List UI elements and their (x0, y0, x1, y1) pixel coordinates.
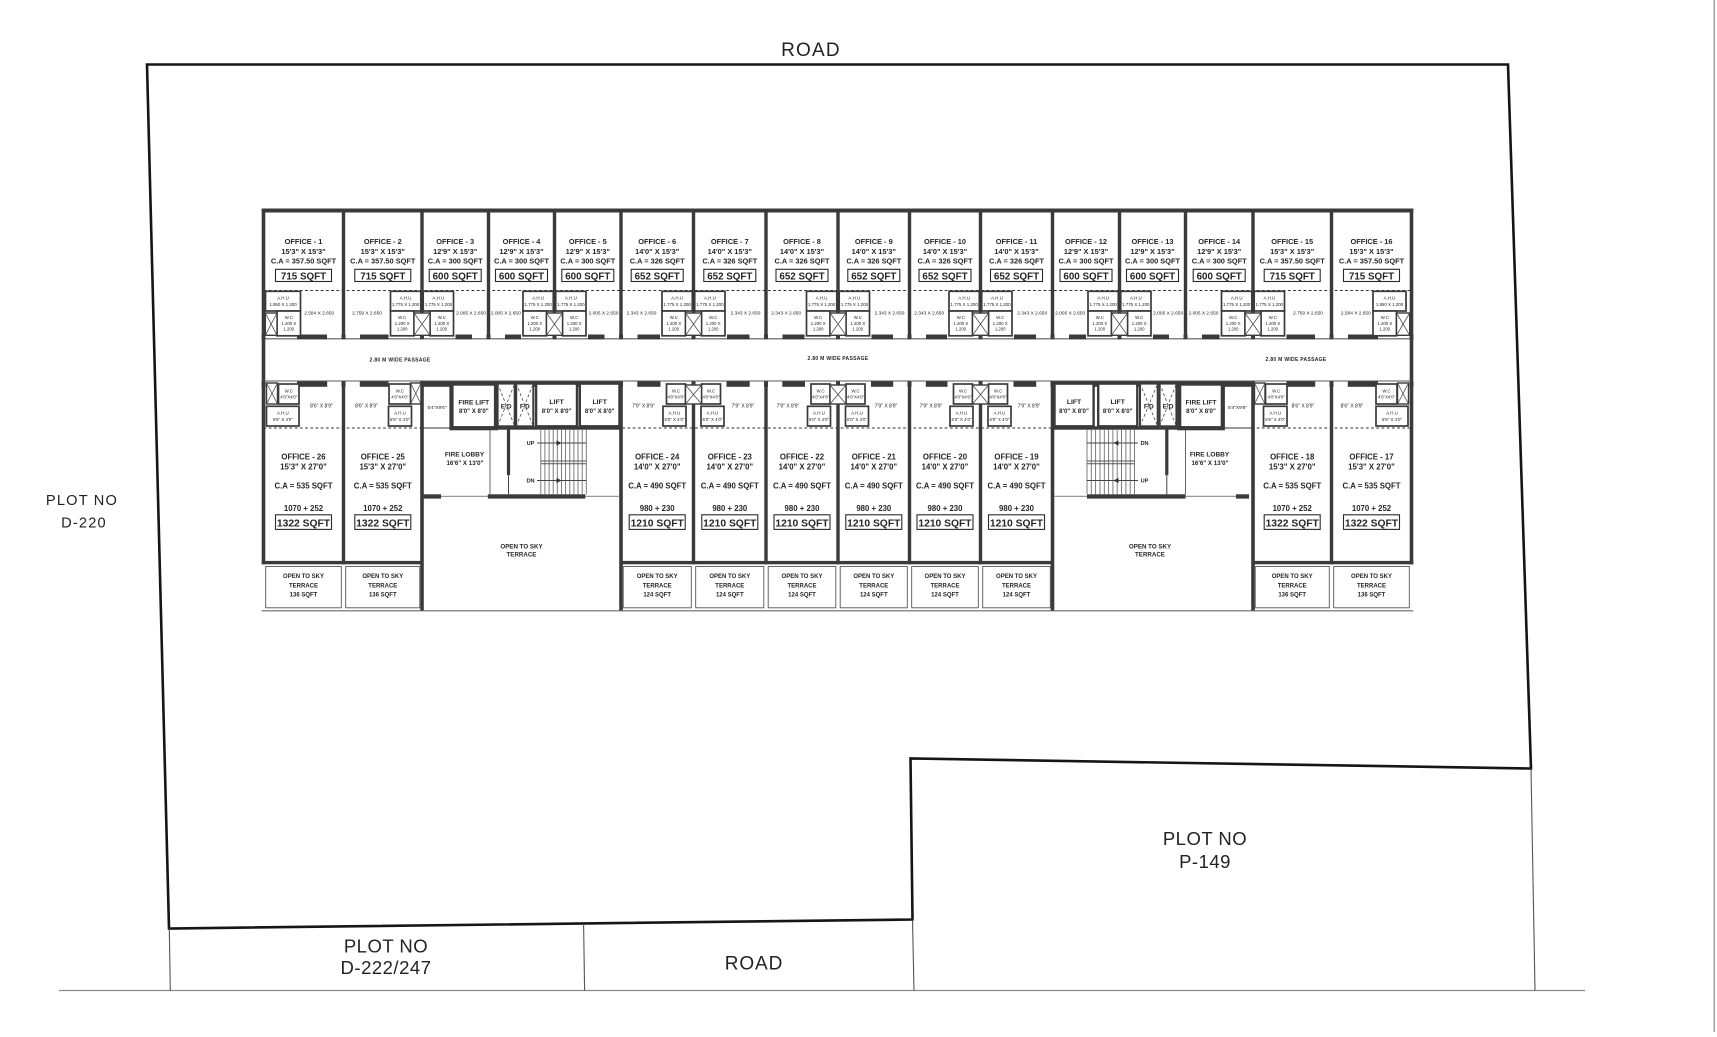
svg-text:1.200: 1.200 (955, 327, 966, 332)
svg-text:15'3" X 27'0": 15'3" X 27'0" (1348, 463, 1395, 472)
svg-text:OPEN TO SKY: OPEN TO SKY (853, 574, 894, 580)
svg-text:A.H.U: A.H.U (816, 296, 828, 301)
svg-text:OPEN TO SKY: OPEN TO SKY (782, 574, 823, 580)
svg-text:4'0"X4'0": 4'0"X4'0" (812, 394, 830, 399)
svg-text:OFFICE - 8: OFFICE - 8 (783, 237, 821, 246)
svg-text:715 SQFT: 715 SQFT (1270, 271, 1315, 282)
svg-text:6'6" X 4'0": 6'6" X 4'0" (1265, 417, 1285, 422)
svg-text:C.A = 535 SQFT: C.A = 535 SQFT (1263, 481, 1321, 490)
svg-text:C.A = 357.50 SQFT: C.A = 357.50 SQFT (350, 257, 416, 266)
svg-text:715 SQFT: 715 SQFT (1349, 271, 1394, 282)
svg-text:12'9" X 15'3": 12'9" X 15'3" (566, 247, 611, 256)
svg-text:W.C: W.C (1381, 315, 1389, 320)
svg-text:1.775 X 1.200: 1.775 X 1.200 (696, 302, 724, 307)
svg-text:W.C: W.C (707, 389, 715, 394)
svg-text:1.775 X 1.200: 1.775 X 1.200 (983, 302, 1011, 307)
svg-text:1.200 X: 1.200 X (567, 321, 582, 326)
svg-text:14'0" X 27'0": 14'0" X 27'0" (993, 463, 1040, 472)
svg-text:C.A = 535 SQFT: C.A = 535 SQFT (1343, 481, 1401, 490)
svg-text:8'6" X 8'9": 8'6" X 8'9" (1341, 404, 1364, 410)
svg-text:124 SQFT: 124 SQFT (860, 593, 888, 599)
svg-text:A.H.U: A.H.U (277, 296, 289, 301)
svg-text:136 SQFT: 136 SQFT (1358, 593, 1386, 599)
svg-text:C.A = 326 SQFT: C.A = 326 SQFT (702, 257, 757, 266)
svg-text:OFFICE - 22: OFFICE - 22 (780, 452, 825, 461)
svg-text:6'6" X 4'0": 6'6" X 4'0" (1382, 417, 1402, 422)
svg-text:A.H.U: A.H.U (1231, 296, 1243, 301)
svg-text:A.H.U: A.H.U (669, 411, 681, 416)
svg-text:1210 SQFT: 1210 SQFT (990, 518, 1044, 529)
svg-text:PLOT NO: PLOT NO (46, 493, 118, 509)
svg-text:8'0" X 8'0": 8'0" X 8'0" (1186, 408, 1216, 415)
svg-text:A.H.U: A.H.U (433, 296, 445, 301)
svg-text:C.A = 326 SQFT: C.A = 326 SQFT (775, 257, 830, 266)
svg-text:OFFICE - 7: OFFICE - 7 (711, 237, 749, 246)
svg-text:TERRACE: TERRACE (930, 583, 959, 589)
svg-text:W.C: W.C (570, 315, 578, 320)
svg-text:652 SQFT: 652 SQFT (922, 271, 967, 282)
svg-text:A.H.U: A.H.U (994, 411, 1006, 416)
svg-text:W.C: W.C (285, 315, 293, 320)
svg-text:1.775 X 1.200: 1.775 X 1.200 (524, 302, 552, 307)
svg-text:1.200 X: 1.200 X (434, 321, 449, 326)
svg-text:652 SQFT: 652 SQFT (851, 271, 896, 282)
svg-text:6'0" X 4'0": 6'0" X 4'0" (665, 417, 685, 422)
svg-text:2.005 X 2.650: 2.005 X 2.650 (1189, 310, 1219, 316)
svg-text:W.C: W.C (816, 389, 824, 394)
svg-text:2.005 X 2.650: 2.005 X 2.650 (1153, 310, 1183, 316)
svg-text:W.C: W.C (1382, 389, 1390, 394)
svg-text:980 + 230: 980 + 230 (856, 504, 892, 513)
svg-text:C.A = 326 SQFT: C.A = 326 SQFT (989, 257, 1044, 266)
svg-text:W.C: W.C (672, 389, 680, 394)
svg-text:LIFT: LIFT (593, 399, 608, 406)
svg-text:OFFICE - 24: OFFICE - 24 (635, 452, 680, 461)
svg-text:1.200 X: 1.200 X (953, 321, 968, 326)
svg-text:1.200 X: 1.200 X (281, 321, 296, 326)
svg-text:A.H.U: A.H.U (1386, 411, 1398, 416)
svg-text:12'9" X 15'3": 12'9" X 15'3" (1064, 247, 1109, 256)
svg-text:A.H.U: A.H.U (1130, 296, 1142, 301)
svg-text:C.A = 300 SQFT: C.A = 300 SQFT (560, 257, 615, 266)
svg-text:8'0" X 8'0": 8'0" X 8'0" (585, 408, 615, 415)
svg-text:OPEN TO SKY: OPEN TO SKY (1129, 544, 1172, 551)
svg-text:600 SQFT: 600 SQFT (565, 271, 610, 282)
svg-text:DN: DN (1140, 441, 1148, 447)
svg-text:8'6" X 8'9": 8'6" X 8'9" (355, 404, 378, 410)
svg-text:D-222/247: D-222/247 (341, 957, 432, 978)
svg-text:F.D: F.D (1144, 404, 1154, 411)
svg-text:W.C: W.C (957, 315, 965, 320)
svg-text:1.200: 1.200 (1267, 327, 1278, 332)
svg-text:2.759 X 2.650: 2.759 X 2.650 (1293, 310, 1323, 316)
svg-text:1.200 X: 1.200 X (1265, 321, 1280, 326)
svg-text:16'6" X 13'0": 16'6" X 13'0" (1191, 460, 1228, 467)
svg-text:12'9" X 15'3": 12'9" X 15'3" (1197, 247, 1242, 256)
svg-text:C.A = 357.50 SQFT: C.A = 357.50 SQFT (1260, 257, 1326, 266)
svg-text:4'0"X4'0": 4'0"X4'0" (667, 394, 685, 399)
svg-text:C.A = 326 SQFT: C.A = 326 SQFT (918, 257, 973, 266)
svg-text:6'6" X 4'0": 6'6" X 4'0" (390, 417, 410, 422)
svg-text:16'6" X 13'0": 16'6" X 13'0" (446, 460, 483, 467)
svg-text:C.A = 300 SQFT: C.A = 300 SQFT (494, 257, 549, 266)
svg-text:UP: UP (1141, 479, 1149, 485)
svg-text:15'3" X 15'3": 15'3" X 15'3" (1349, 247, 1394, 256)
svg-text:OFFICE - 4: OFFICE - 4 (503, 237, 542, 246)
svg-text:1.200: 1.200 (1094, 327, 1105, 332)
svg-text:A.H.U: A.H.U (849, 296, 861, 301)
svg-text:6'0" X 4'0": 6'0" X 4'0" (703, 417, 723, 422)
svg-text:14'0" X 27'0": 14'0" X 27'0" (850, 463, 897, 472)
svg-text:4'0"X4'0": 4'0"X4'0" (1268, 394, 1286, 399)
svg-text:A.H.U: A.H.U (277, 411, 289, 416)
svg-text:OPEN TO SKY: OPEN TO SKY (996, 574, 1037, 580)
svg-text:OPEN TO SKY: OPEN TO SKY (925, 574, 966, 580)
svg-text:2.584 X 2.650: 2.584 X 2.650 (304, 310, 334, 316)
svg-text:W.C: W.C (996, 315, 1004, 320)
svg-text:14'0" X 27'0": 14'0" X 27'0" (922, 463, 969, 472)
svg-text:OFFICE - 25: OFFICE - 25 (361, 452, 406, 461)
svg-text:OFFICE - 5: OFFICE - 5 (569, 237, 607, 246)
svg-text:600 SQFT: 600 SQFT (433, 271, 478, 282)
svg-text:5'4"X9'6": 5'4"X9'6" (427, 405, 446, 411)
svg-text:OPEN TO SKY: OPEN TO SKY (500, 544, 543, 551)
svg-text:6'0" X 4'0": 6'0" X 4'0" (847, 417, 867, 422)
svg-text:8'0" X 8'0": 8'0" X 8'0" (1103, 408, 1133, 415)
svg-text:A.H.U: A.H.U (991, 296, 1003, 301)
svg-text:1.200: 1.200 (569, 327, 580, 332)
svg-text:8'0" X 8'0": 8'0" X 8'0" (1059, 408, 1089, 415)
svg-text:OFFICE - 21: OFFICE - 21 (852, 452, 897, 461)
svg-text:TERRACE: TERRACE (289, 583, 318, 589)
svg-text:A.H.U: A.H.U (707, 411, 719, 416)
svg-text:C.A = 535 SQFT: C.A = 535 SQFT (354, 481, 412, 490)
svg-text:C.A = 490 SQFT: C.A = 490 SQFT (916, 481, 974, 490)
svg-text:1.775 X 1.200: 1.775 X 1.200 (1090, 302, 1118, 307)
svg-text:LIFT: LIFT (549, 399, 564, 406)
svg-text:TERRACE: TERRACE (715, 583, 744, 589)
svg-text:C.A = 357.50 SQFT: C.A = 357.50 SQFT (271, 257, 337, 266)
svg-text:715 SQFT: 715 SQFT (360, 271, 405, 282)
svg-text:W.C: W.C (1135, 315, 1143, 320)
svg-text:A.H.U: A.H.U (956, 411, 968, 416)
svg-text:715 SQFT: 715 SQFT (281, 271, 326, 282)
svg-text:980 + 230: 980 + 230 (785, 504, 821, 513)
svg-text:14'0" X 27'0": 14'0" X 27'0" (706, 463, 753, 472)
svg-text:2.343 X 2.650: 2.343 X 2.650 (875, 310, 905, 316)
svg-text:1.200: 1.200 (813, 327, 824, 332)
svg-text:1.200: 1.200 (668, 327, 679, 332)
svg-text:A.H.U: A.H.U (958, 296, 970, 301)
svg-text:7'9" X 8'9": 7'9" X 8'9" (632, 404, 655, 410)
svg-text:A.H.U: A.H.U (851, 411, 863, 416)
svg-text:2.80 M WIDE PASSAGE: 2.80 M WIDE PASSAGE (370, 357, 431, 363)
svg-text:P-149: P-149 (1179, 851, 1231, 872)
svg-text:652 SQFT: 652 SQFT (707, 271, 752, 282)
svg-text:1070 + 252: 1070 + 252 (363, 504, 403, 513)
svg-text:2.584 X 2.650: 2.584 X 2.650 (1341, 310, 1371, 316)
svg-text:W.C: W.C (398, 315, 406, 320)
svg-text:2.005 X 2.650: 2.005 X 2.650 (589, 310, 619, 316)
svg-text:1.200 X: 1.200 X (1092, 321, 1107, 326)
svg-text:TERRACE: TERRACE (1135, 551, 1165, 558)
svg-text:1070 + 252: 1070 + 252 (284, 504, 324, 513)
svg-text:W.C: W.C (285, 389, 293, 394)
svg-text:1.200: 1.200 (436, 327, 447, 332)
svg-text:1.200 X: 1.200 X (527, 321, 542, 326)
svg-text:TERRACE: TERRACE (1278, 583, 1307, 589)
svg-text:7'9" X 8'9": 7'9" X 8'9" (875, 404, 898, 410)
svg-text:1.775 X 1.200: 1.775 X 1.200 (1122, 302, 1150, 307)
svg-text:C.A = 490 SQFT: C.A = 490 SQFT (701, 481, 759, 490)
svg-text:1.775 X 1.200: 1.775 X 1.200 (663, 302, 691, 307)
svg-text:7'9" X 8'9": 7'9" X 8'9" (777, 404, 800, 410)
svg-text:OFFICE - 6: OFFICE - 6 (638, 237, 676, 246)
svg-text:C.A = 300 SQFT: C.A = 300 SQFT (1059, 257, 1114, 266)
svg-text:W.C: W.C (854, 315, 862, 320)
svg-text:1.200 X: 1.200 X (666, 321, 681, 326)
svg-text:1.775 X 1.200: 1.775 X 1.200 (808, 302, 836, 307)
svg-text:TERRACE: TERRACE (859, 583, 888, 589)
svg-text:2.343 X 2.650: 2.343 X 2.650 (627, 310, 657, 316)
svg-text:1.775 X 1.200: 1.775 X 1.200 (1256, 302, 1284, 307)
svg-text:4'0"X4'0": 4'0"X4'0" (1378, 394, 1396, 399)
svg-text:1.200: 1.200 (1379, 327, 1390, 332)
svg-text:600 SQFT: 600 SQFT (1130, 271, 1175, 282)
svg-text:DN: DN (526, 479, 534, 485)
svg-text:1210 SQFT: 1210 SQFT (703, 518, 757, 529)
svg-text:1.775 X 1.200: 1.775 X 1.200 (557, 302, 585, 307)
svg-text:LIFT: LIFT (1111, 399, 1126, 406)
svg-text:OFFICE - 16: OFFICE - 16 (1351, 237, 1393, 246)
svg-text:4'0"X4'0": 4'0"X4'0" (280, 394, 298, 399)
svg-text:1.200: 1.200 (852, 327, 863, 332)
svg-text:W.C: W.C (531, 315, 539, 320)
svg-text:OFFICE - 12: OFFICE - 12 (1065, 237, 1107, 246)
svg-text:OPEN TO SKY: OPEN TO SKY (362, 574, 403, 580)
svg-text:136 SQFT: 136 SQFT (369, 593, 397, 599)
svg-text:1210 SQFT: 1210 SQFT (918, 518, 972, 529)
svg-text:4'0"X4'0": 4'0"X4'0" (954, 394, 972, 399)
svg-text:1.950 X 1.200: 1.950 X 1.200 (1376, 302, 1404, 307)
svg-text:15'3" X 15'3": 15'3" X 15'3" (1270, 247, 1315, 256)
svg-text:E.D: E.D (1163, 404, 1174, 411)
svg-text:OFFICE - 19: OFFICE - 19 (994, 452, 1039, 461)
svg-text:7'9" X 8'9": 7'9" X 8'9" (732, 404, 755, 410)
svg-text:OFFICE - 1: OFFICE - 1 (285, 237, 323, 246)
svg-text:124 SQFT: 124 SQFT (716, 593, 744, 599)
svg-text:8'0" X 8'0": 8'0" X 8'0" (459, 408, 489, 415)
svg-text:2.759 X 2.650: 2.759 X 2.650 (352, 310, 382, 316)
svg-text:652 SQFT: 652 SQFT (994, 271, 1039, 282)
svg-text:1210 SQFT: 1210 SQFT (631, 518, 685, 529)
svg-text:A.H.U: A.H.U (1263, 296, 1275, 301)
svg-text:A.H.U: A.H.U (1384, 296, 1396, 301)
svg-text:124 SQFT: 124 SQFT (788, 593, 816, 599)
svg-text:1210 SQFT: 1210 SQFT (775, 518, 829, 529)
svg-text:124 SQFT: 124 SQFT (1003, 593, 1031, 599)
svg-text:6'0" X 4'0": 6'0" X 4'0" (952, 417, 972, 422)
svg-text:1.200 X: 1.200 X (811, 321, 826, 326)
svg-text:652 SQFT: 652 SQFT (635, 271, 680, 282)
svg-text:14'0" X 15'3": 14'0" X 15'3" (994, 247, 1039, 256)
svg-text:980 + 230: 980 + 230 (712, 504, 748, 513)
svg-text:C.A = 490 SQFT: C.A = 490 SQFT (845, 481, 903, 490)
svg-text:TERRACE: TERRACE (1357, 583, 1386, 589)
svg-text:15'3" X 27'0": 15'3" X 27'0" (280, 463, 327, 472)
svg-text:5'4"X9'6": 5'4"X9'6" (1228, 405, 1247, 411)
svg-text:2.343 X 2.650: 2.343 X 2.650 (914, 310, 944, 316)
svg-text:1.200 X: 1.200 X (850, 321, 865, 326)
svg-text:W.C: W.C (851, 389, 859, 394)
svg-text:14'0" X 15'3": 14'0" X 15'3" (635, 247, 680, 256)
svg-text:OFFICE - 2: OFFICE - 2 (364, 237, 402, 246)
svg-text:C.A = 490 SQFT: C.A = 490 SQFT (988, 481, 1046, 490)
svg-text:1.200 X: 1.200 X (1226, 321, 1241, 326)
svg-text:1.200: 1.200 (1228, 327, 1239, 332)
svg-text:12'9" X 15'3": 12'9" X 15'3" (433, 247, 478, 256)
svg-text:600 SQFT: 600 SQFT (1197, 271, 1242, 282)
svg-text:OPEN TO SKY: OPEN TO SKY (637, 574, 678, 580)
svg-text:6'0" X 4'0": 6'0" X 4'0" (990, 417, 1010, 422)
svg-text:D-220: D-220 (61, 516, 107, 532)
svg-text:W.C: W.C (670, 315, 678, 320)
svg-text:ROAD: ROAD (725, 954, 784, 975)
svg-text:A.H.U: A.H.U (704, 296, 716, 301)
svg-text:C.A = 535 SQFT: C.A = 535 SQFT (275, 481, 333, 490)
svg-text:W.C: W.C (959, 389, 967, 394)
svg-text:OFFICE - 15: OFFICE - 15 (1271, 237, 1313, 246)
svg-text:1.775 X 1.200: 1.775 X 1.200 (392, 302, 420, 307)
svg-text:C.A = 300 SQFT: C.A = 300 SQFT (1125, 257, 1180, 266)
svg-text:OFFICE - 20: OFFICE - 20 (923, 452, 968, 461)
svg-text:1322 SQFT: 1322 SQFT (356, 518, 410, 529)
svg-text:1322 SQFT: 1322 SQFT (1266, 518, 1320, 529)
svg-text:1.775 X 1.200: 1.775 X 1.200 (950, 302, 978, 307)
svg-text:1.200: 1.200 (529, 327, 540, 332)
svg-text:4'0"X4'0": 4'0"X4'0" (702, 394, 720, 399)
svg-text:4'0"X4'0": 4'0"X4'0" (847, 394, 865, 399)
svg-text:C.A = 490 SQFT: C.A = 490 SQFT (628, 481, 686, 490)
svg-text:PLOT NO: PLOT NO (344, 936, 428, 957)
svg-text:1.200: 1.200 (397, 327, 408, 332)
svg-text:1.200: 1.200 (1134, 327, 1145, 332)
svg-text:1210 SQFT: 1210 SQFT (847, 518, 901, 529)
svg-text:OFFICE - 9: OFFICE - 9 (855, 237, 893, 246)
svg-text:ROAD: ROAD (781, 40, 841, 61)
svg-text:OPEN TO SKY: OPEN TO SKY (1351, 574, 1392, 580)
svg-text:C.A = 326 SQFT: C.A = 326 SQFT (630, 257, 685, 266)
svg-text:OFFICE - 18: OFFICE - 18 (1270, 452, 1315, 461)
svg-text:652 SQFT: 652 SQFT (779, 271, 824, 282)
svg-text:12'9" X 15'3": 12'9" X 15'3" (1130, 247, 1175, 256)
svg-text:4'0"X4'0": 4'0"X4'0" (989, 394, 1007, 399)
svg-text:6'0" X 4'0": 6'0" X 4'0" (809, 417, 829, 422)
svg-text:TERRACE: TERRACE (1002, 583, 1031, 589)
svg-text:A.H.U: A.H.U (813, 411, 825, 416)
svg-text:4'0"X4'0": 4'0"X4'0" (391, 394, 409, 399)
svg-text:124 SQFT: 124 SQFT (643, 593, 671, 599)
svg-text:1070 + 252: 1070 + 252 (1352, 504, 1392, 513)
svg-text:C.A = 326 SQFT: C.A = 326 SQFT (846, 257, 901, 266)
svg-text:15'3" X 15'3": 15'3" X 15'3" (281, 247, 326, 256)
svg-text:W.C: W.C (1229, 315, 1237, 320)
svg-text:LIFT: LIFT (1067, 399, 1082, 406)
svg-text:A.H.U: A.H.U (565, 296, 577, 301)
svg-text:W.C: W.C (994, 389, 1002, 394)
svg-text:6'6" X 4'0": 6'6" X 4'0" (273, 417, 293, 422)
svg-text:OFFICE - 13: OFFICE - 13 (1132, 237, 1174, 246)
svg-text:OPEN TO SKY: OPEN TO SKY (1272, 574, 1313, 580)
svg-text:1.200 X: 1.200 X (1377, 321, 1392, 326)
svg-text:1.200: 1.200 (995, 327, 1006, 332)
svg-text:1.200 X: 1.200 X (706, 321, 721, 326)
svg-text:124 SQFT: 124 SQFT (931, 593, 959, 599)
svg-text:W.C: W.C (814, 315, 822, 320)
svg-text:TERRACE: TERRACE (368, 583, 397, 589)
svg-text:2.005 X 2.650: 2.005 X 2.650 (1055, 310, 1085, 316)
svg-text:1.200: 1.200 (283, 327, 294, 332)
svg-text:600 SQFT: 600 SQFT (499, 271, 544, 282)
svg-text:14'0" X 15'3": 14'0" X 15'3" (923, 247, 968, 256)
svg-text:15'3" X 27'0": 15'3" X 27'0" (359, 463, 406, 472)
svg-text:2.343 X 2.650: 2.343 X 2.650 (731, 310, 761, 316)
svg-text:FIRE LIFT: FIRE LIFT (1186, 400, 1217, 407)
svg-text:12'9" X 15'3": 12'9" X 15'3" (499, 247, 544, 256)
svg-text:14'0" X 27'0": 14'0" X 27'0" (779, 463, 826, 472)
svg-text:TERRACE: TERRACE (643, 583, 672, 589)
svg-text:C.A = 300 SQFT: C.A = 300 SQFT (428, 257, 483, 266)
svg-text:FIRE LIFT: FIRE LIFT (458, 400, 489, 407)
svg-text:2.343 X 2.650: 2.343 X 2.650 (1017, 310, 1047, 316)
svg-text:1.200 X: 1.200 X (993, 321, 1008, 326)
svg-text:1.950 X 1.200: 1.950 X 1.200 (269, 302, 297, 307)
svg-text:E.D: E.D (501, 404, 512, 411)
svg-text:980 + 230: 980 + 230 (640, 504, 676, 513)
svg-text:OPEN TO SKY: OPEN TO SKY (283, 574, 324, 580)
svg-text:OFFICE - 17: OFFICE - 17 (1349, 452, 1393, 461)
svg-text:OFFICE - 10: OFFICE - 10 (924, 237, 966, 246)
svg-text:FIRE LOBBY: FIRE LOBBY (445, 452, 485, 459)
svg-text:C.A = 357.50 SQFT: C.A = 357.50 SQFT (1339, 257, 1405, 266)
svg-text:W.C: W.C (438, 315, 446, 320)
svg-text:F.D: F.D (520, 404, 530, 411)
svg-text:OFFICE - 14: OFFICE - 14 (1198, 237, 1241, 246)
svg-text:14'0" X 15'3": 14'0" X 15'3" (852, 247, 897, 256)
svg-text:PLOT NO: PLOT NO (1163, 828, 1247, 849)
svg-text:OFFICE - 23: OFFICE - 23 (708, 452, 753, 461)
svg-text:A.H.U: A.H.U (1097, 296, 1109, 301)
svg-text:TERRACE: TERRACE (787, 583, 816, 589)
svg-text:2.80 M WIDE PASSAGE: 2.80 M WIDE PASSAGE (808, 356, 869, 362)
svg-text:FIRE LOBBY: FIRE LOBBY (1190, 452, 1230, 459)
svg-text:8'0" X 8'0": 8'0" X 8'0" (542, 408, 572, 415)
svg-text:OFFICE - 3: OFFICE - 3 (436, 237, 474, 246)
svg-text:14'0" X 15'3": 14'0" X 15'3" (780, 247, 825, 256)
svg-text:600 SQFT: 600 SQFT (1063, 271, 1108, 282)
svg-text:C.A = 490 SQFT: C.A = 490 SQFT (773, 481, 831, 490)
svg-text:UP: UP (527, 441, 535, 447)
svg-text:C.A = 300 SQFT: C.A = 300 SQFT (1192, 257, 1247, 266)
svg-text:W.C: W.C (709, 315, 717, 320)
svg-text:A.H.U: A.H.U (394, 411, 406, 416)
svg-text:980 + 230: 980 + 230 (999, 504, 1035, 513)
svg-text:14'0" X 15'3": 14'0" X 15'3" (708, 247, 753, 256)
svg-text:2.343 X 2.650: 2.343 X 2.650 (771, 310, 801, 316)
svg-text:W.C: W.C (1269, 315, 1277, 320)
svg-text:2.80 M WIDE PASSAGE: 2.80 M WIDE PASSAGE (1266, 357, 1327, 363)
svg-text:A.H.U: A.H.U (1269, 411, 1281, 416)
